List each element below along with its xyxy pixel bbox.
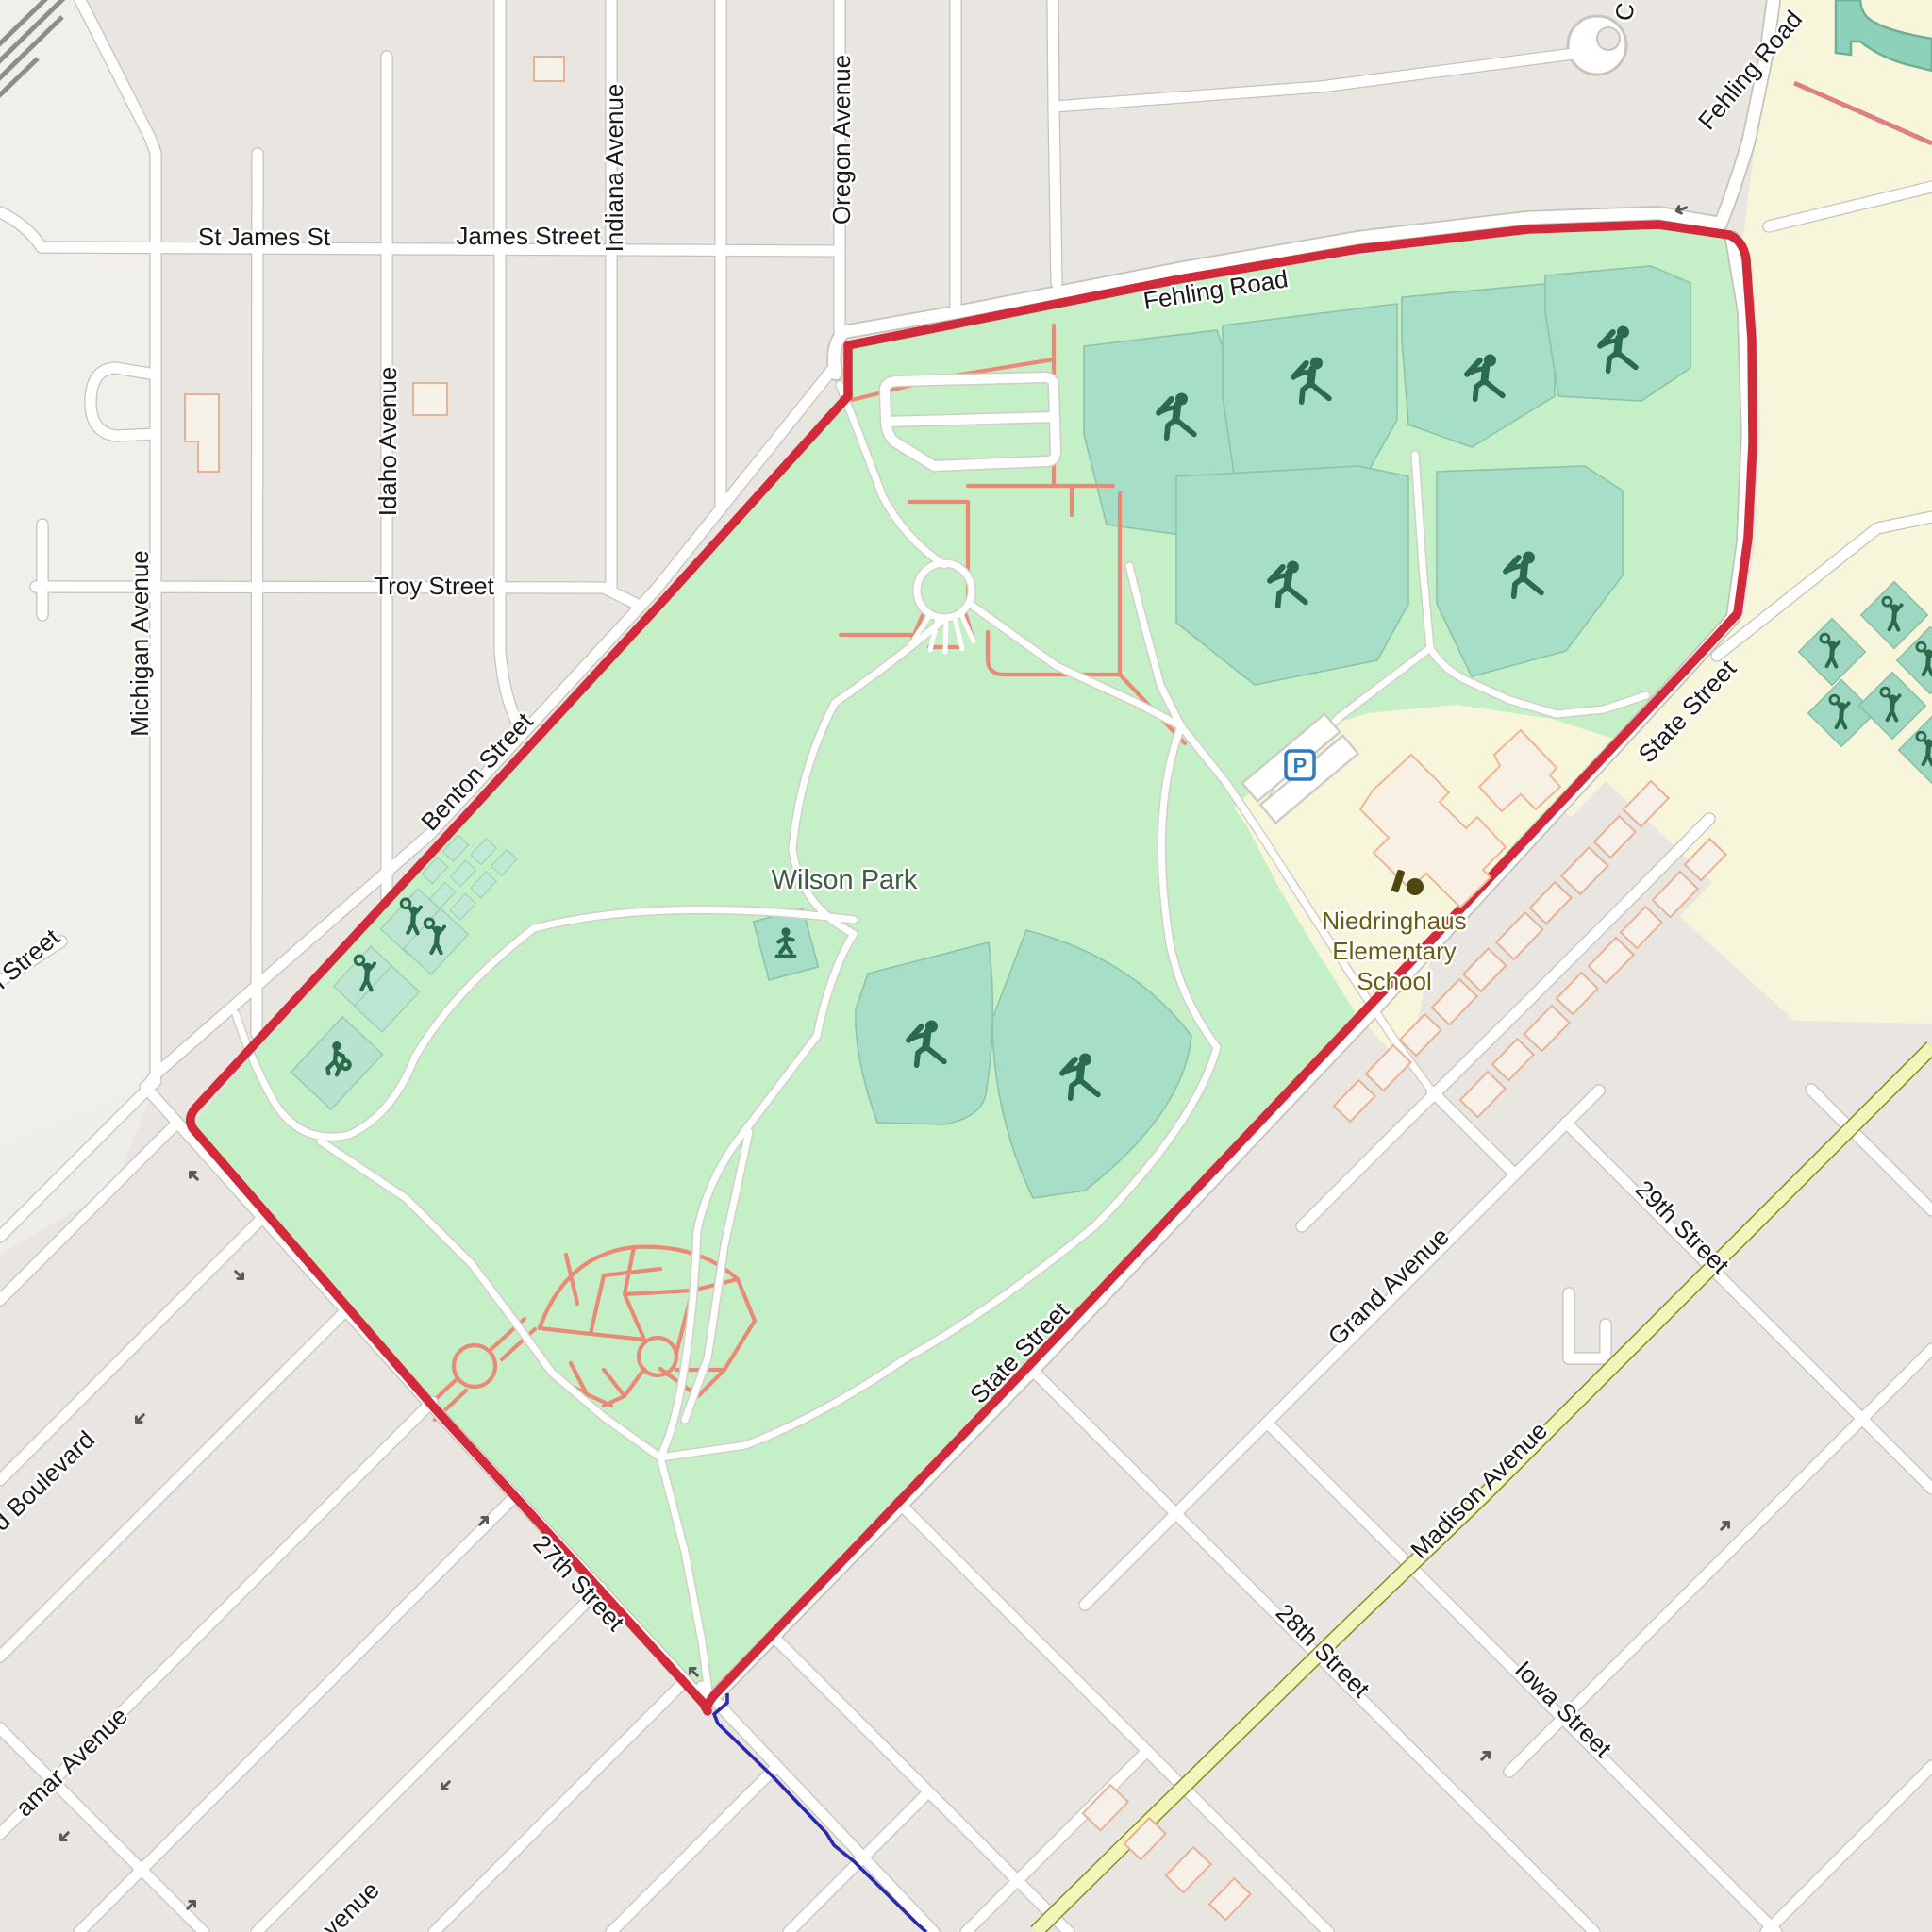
svg-text:Oregon Avenue: Oregon Avenue [827,55,856,225]
svg-text:P: P [1293,754,1307,777]
svg-text:Indiana Avenue: Indiana Avenue [600,84,628,253]
svg-text:St James St: St James St [198,223,331,251]
svg-text:Michigan Avenue: Michigan Avenue [125,550,154,737]
svg-text:Elementary: Elementary [1332,937,1457,965]
svg-text:Niedringhaus: Niedringhaus [1322,907,1466,935]
svg-text:Wilson Park: Wilson Park [772,865,918,895]
svg-text:Idaho Avenue: Idaho Avenue [374,367,402,517]
svg-text:School: School [1357,967,1432,995]
svg-text:James Street: James Street [456,222,601,250]
svg-text:Troy Street: Troy Street [374,572,494,600]
